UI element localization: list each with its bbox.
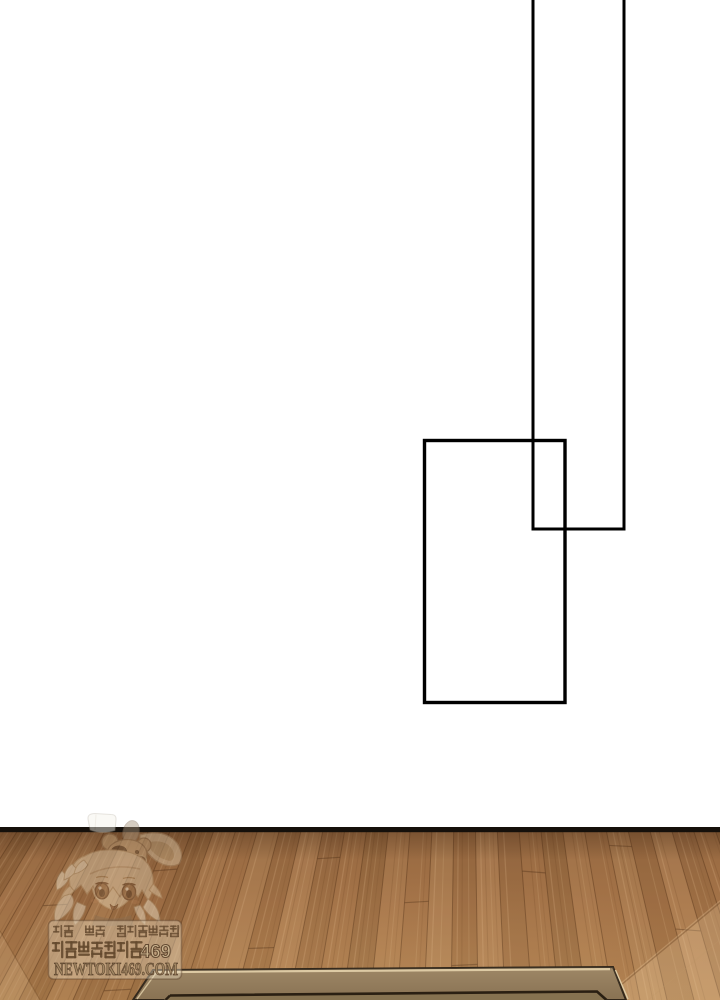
svg-text:NEWTOKI469.COM: NEWTOKI469.COM (54, 959, 178, 979)
